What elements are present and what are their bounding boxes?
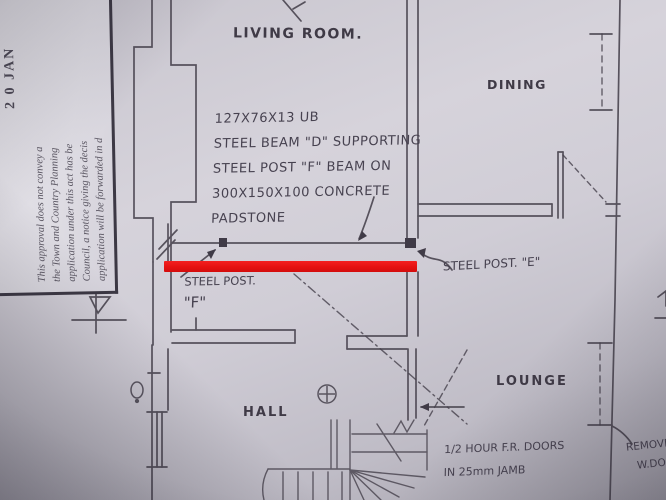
beam-annotation-line: PADSTONE	[211, 203, 419, 232]
fire-doors-line: 1/2 HOUR F.R. DOORS	[444, 434, 565, 461]
room-label-dining: DINING	[487, 77, 547, 92]
fire-doors-line: IN 25mm JAMB	[444, 457, 565, 484]
wall-symbol-circle	[131, 382, 143, 398]
room-label-lounge: LOUNGE	[496, 374, 568, 389]
room-label-living: LIVING ROOM.	[233, 25, 363, 42]
walls	[72, 0, 666, 500]
stamp-date: 2 0 JAN	[1, 0, 23, 109]
stairs	[263, 420, 427, 500]
floor-plan-photo: 2 0 JAN This approval does not convey a …	[0, 0, 666, 500]
steel-post-f-symbol	[219, 238, 227, 247]
beam-annotation: 127X76X13 UB STEEL BEAM "D" SUPPORTING S…	[211, 103, 423, 232]
red-highlight-beam	[164, 261, 417, 272]
stamp-text: This approval does not convey a the Town…	[29, 0, 115, 282]
beam-annotation-line: STEEL BEAM "D" SUPPORTING	[213, 128, 421, 157]
door-swings-and-dimension-lines	[294, 34, 606, 426]
steel-post-f-annotation: STEEL POST. "F"	[183, 270, 256, 313]
steel-post-e-symbol	[405, 238, 416, 248]
room-label-hall: HALL	[243, 405, 289, 420]
approval-stamp: 2 0 JAN This approval does not convey a …	[0, 0, 118, 296]
steel-post-f-label: STEEL POST.	[184, 270, 256, 292]
steel-post-f-letter: "F"	[183, 291, 255, 313]
beam-annotation-line: STEEL POST "F" BEAM ON	[212, 153, 420, 182]
steel-posts-and-arrowheads	[207, 231, 429, 411]
electrical-symbols	[131, 382, 336, 403]
beam-annotation-line: 127X76X13 UB	[214, 103, 422, 132]
fire-doors-annotation: 1/2 HOUR F.R. DOORS IN 25mm JAMB	[444, 434, 565, 484]
beam-annotation-line: 300X150X100 CONCRETE	[212, 178, 420, 207]
remove-annotation: REMOVE W.DORE	[625, 433, 666, 476]
